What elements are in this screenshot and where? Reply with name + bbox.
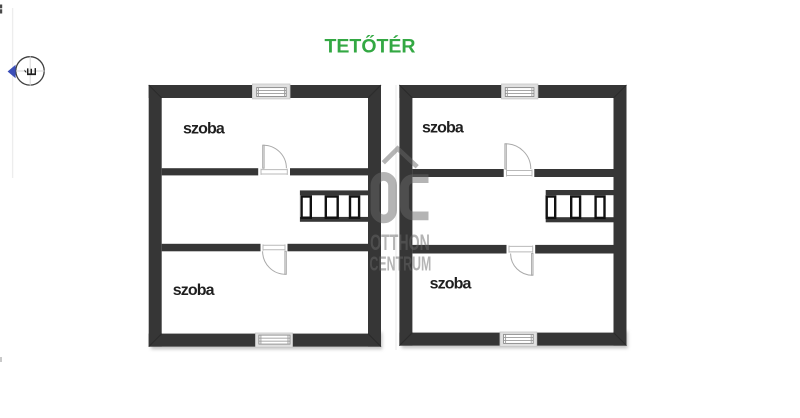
svg-text:szoba: szoba bbox=[422, 120, 464, 137]
svg-text:OTTHON: OTTHON bbox=[370, 230, 430, 255]
svg-text:szoba: szoba bbox=[430, 276, 472, 293]
svg-text:TETŐTÉR: TETŐTÉR bbox=[325, 35, 416, 58]
svg-text:szoba: szoba bbox=[173, 282, 215, 299]
svg-text:É: É bbox=[24, 68, 39, 76]
svg-text:CENTRUM: CENTRUM bbox=[370, 252, 432, 275]
svg-text:szoba: szoba bbox=[183, 121, 225, 138]
